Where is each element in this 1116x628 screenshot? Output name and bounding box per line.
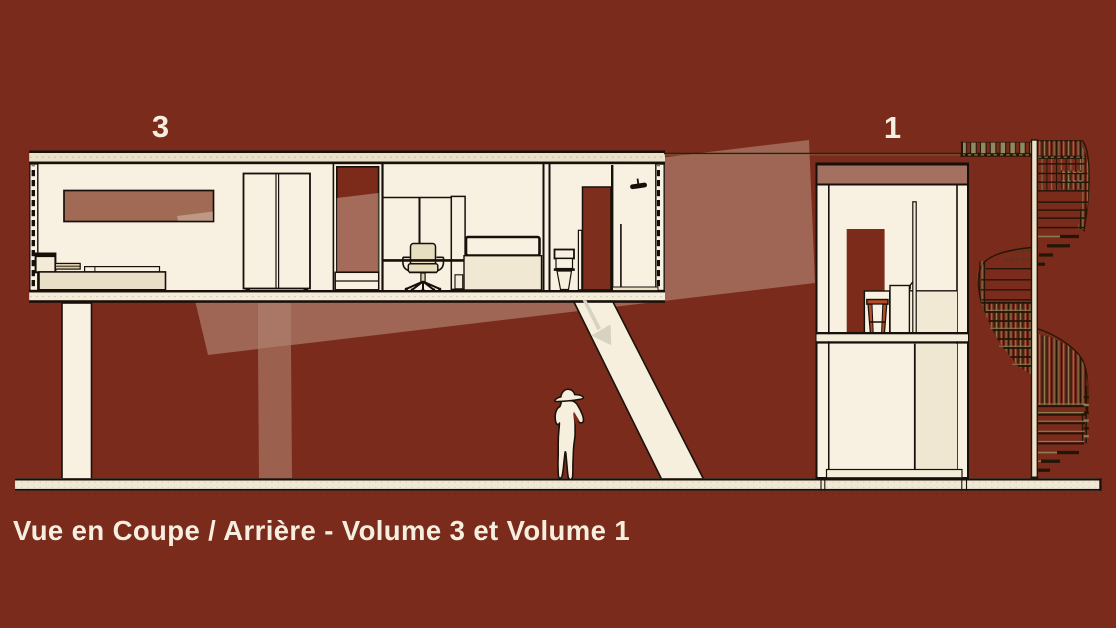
svg-text:1: 1: [884, 110, 901, 145]
svg-text:Vue en Coupe / Arrière - Volum: Vue en Coupe / Arrière - Volume 3 et Vol…: [13, 515, 630, 546]
svg-text:3: 3: [152, 109, 169, 144]
